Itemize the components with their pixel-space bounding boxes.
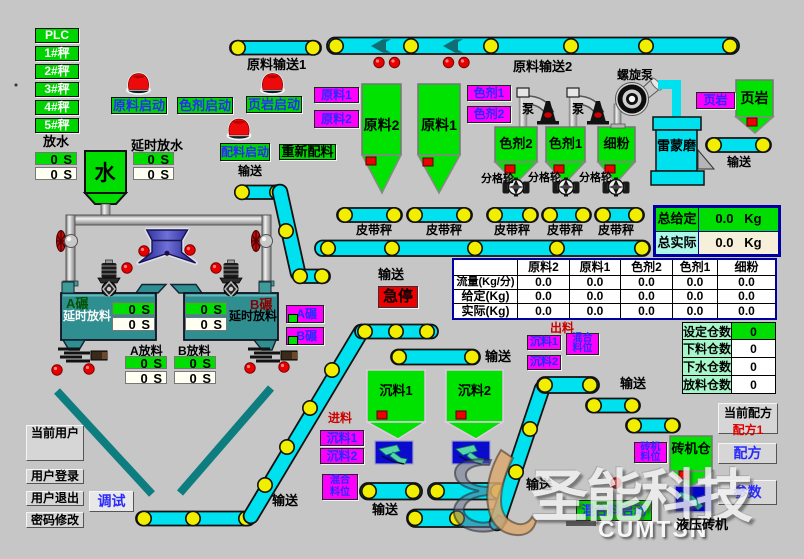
svg-text:水: 水 [95,162,117,185]
